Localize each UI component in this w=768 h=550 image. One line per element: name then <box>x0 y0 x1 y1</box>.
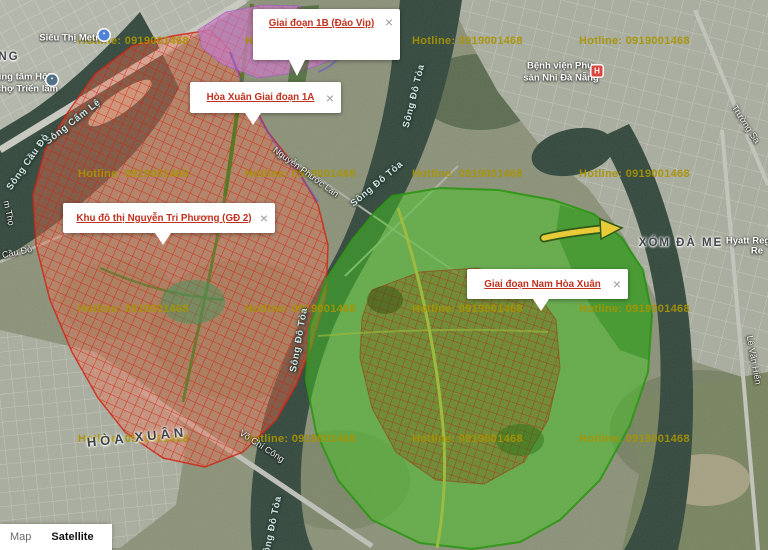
map-type-control: Map Satellite <box>0 524 112 550</box>
info-window-tail <box>155 233 171 245</box>
close-icon[interactable]: × <box>385 15 393 29</box>
info-window-tail <box>245 113 261 125</box>
map-canvas[interactable]: Hotline: 0919001468Hotline: 0919001468Ho… <box>0 0 768 550</box>
close-icon[interactable]: × <box>326 91 334 105</box>
info-window-tail <box>289 60 305 76</box>
info-window-hoa-xuan-1a[interactable]: Hòa Xuân Giai đoạn 1A× <box>190 82 341 113</box>
info-window-tail <box>533 299 549 311</box>
info-window-giai-doan-1b-link[interactable]: Giai đoạn 1B (Đảo Vip) <box>269 18 374 29</box>
park-patch <box>161 280 225 324</box>
close-icon[interactable]: × <box>260 211 268 225</box>
info-window-nguyen-tri-phuong-link[interactable]: Khu đô thị Nguyễn Tri Phương (GĐ 2) <box>76 213 251 224</box>
info-window-nam-hoa-xuan-link[interactable]: Giai đoạn Nam Hòa Xuân <box>484 279 601 290</box>
info-window-nguyen-tri-phuong[interactable]: Khu đô thị Nguyễn Tri Phương (GĐ 2)× <box>63 203 275 233</box>
info-window-nam-hoa-xuan[interactable]: Giai đoạn Nam Hòa Xuân× <box>467 269 628 299</box>
info-window-hoa-xuan-1a-link[interactable]: Hòa Xuân Giai đoạn 1A <box>207 92 315 103</box>
satellite-view-button[interactable]: Satellite <box>41 524 103 550</box>
satellite-map[interactable] <box>0 0 768 550</box>
close-icon[interactable]: × <box>613 277 621 291</box>
info-window-giai-doan-1b[interactable]: Giai đoạn 1B (Đảo Vip)× <box>253 9 400 60</box>
map-view-button[interactable]: Map <box>0 524 41 550</box>
